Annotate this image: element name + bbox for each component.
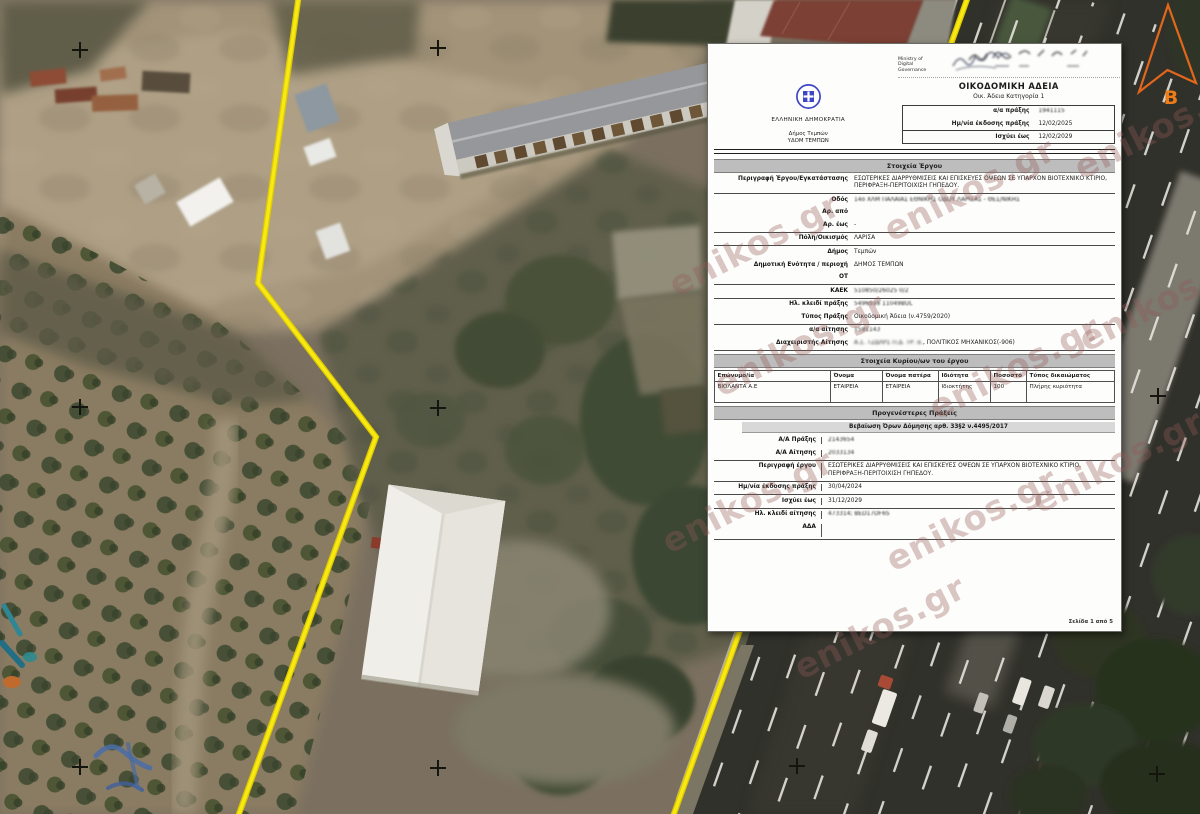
manager-role: , ΠΟΛΙΤΙΚΟΣ ΜΗΧΑΝΙΚΟΣ(-906)	[923, 340, 1015, 346]
page-number: Σελίδα 1 από 5	[714, 619, 1115, 626]
valid-until-label: Ισχύει έως	[906, 134, 1034, 141]
section-project-title: Στοιχεία Έργου	[714, 159, 1115, 173]
authority-country: ΕΛΛΗΝΙΚΗ ΔΗΜΟΚΡΑΤΙΑ	[714, 117, 902, 124]
authority-municipality: Δήμος Τεμπών	[714, 131, 902, 138]
permit-id-value: 1941115	[1034, 108, 1111, 115]
screenshot-stage: Β Ministry of Digital Governance	[0, 0, 1200, 814]
prior-subtitle: Βεβαίωση Όρων Δόμησης αρθ. 33§2 ν.4495/2…	[742, 422, 1115, 433]
section-owners-title: Στοιχεία Κυρίου/ων του έργου	[714, 354, 1115, 368]
issue-date-label: Ημ/νία έκδοσης πράξης	[906, 121, 1034, 128]
document-subtitle: Οικ. Άδεια Κατηγορία 1	[902, 93, 1115, 101]
permit-id-table: α/α πράξης 1941115 Ημ/νία έκδοσης πράξης…	[902, 105, 1115, 144]
document-header: ΕΛΛΗΝΙΚΗ ΔΗΜΟΚΡΑΤΙΑ Δήμος Τεμπών ΥΔΟΜ ΤΕ…	[714, 81, 1115, 145]
handwritten-scribbles-icon	[965, 46, 1115, 72]
permit-id-label: α/α πράξης	[906, 108, 1034, 115]
issue-date-value: 12/02/2025	[1034, 121, 1111, 128]
section-prior: Α/Α Πράξης2143654 Α/Α Αίτησης2033134 Περ…	[714, 434, 1115, 540]
manager-name-redacted: Α.Σ. ΤΖΔΛΡΣ Π.Δ. ΤΡ. α.	[854, 340, 923, 346]
section-project: Περιγραφή Έργου/ΕγκατάστασηςΕΣΩΤΕΡΙΚΕΣ Δ…	[714, 173, 1115, 351]
authority-office: ΥΔΟΜ ΤΕΜΠΩΝ	[714, 138, 902, 145]
document-title: ΟΙΚΟΔΟΜΙΚΗ ΑΔΕΙΑ	[902, 81, 1115, 92]
divider	[714, 149, 1115, 154]
north-label: Β	[1164, 87, 1178, 109]
valid-until-value: 12/02/2029	[1034, 134, 1111, 141]
digital-signature-block: Ministry of Digital Governance	[714, 48, 1115, 81]
ministry-signature-text: Ministry of Digital Governance	[898, 57, 958, 73]
owners-table: Επώνυμο/ία Όνομα Όνομα πατέρα Ιδιότητα Π…	[714, 370, 1115, 402]
hellenic-republic-emblem-icon	[795, 83, 822, 110]
building-permit-document: Ministry of Digital Governance	[707, 43, 1122, 632]
section-prior-title: Προγενέστερες Πράξεις	[714, 406, 1115, 420]
owner-row: ΒΙΟΛΑΝΤΑ Α.Ε ΕΤΑΙΡΕΙΑ ΕΤΑΙΡΕΙΑ Ιδιοκτήτη…	[715, 382, 1115, 402]
